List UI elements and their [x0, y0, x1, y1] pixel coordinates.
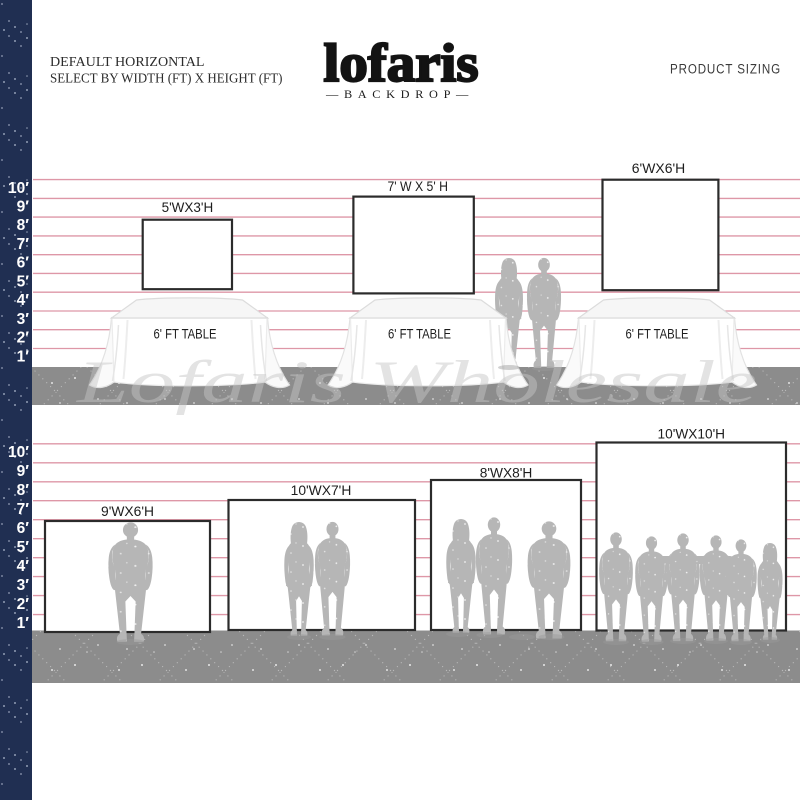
svg-text:7' W X 5' H: 7' W X 5' H	[387, 179, 448, 194]
svg-text:8'WX8'H: 8'WX8'H	[480, 466, 533, 481]
svg-text:7′: 7′	[17, 501, 30, 518]
svg-text:SELECT BY WIDTH (FT) X HEIGHT: SELECT BY WIDTH (FT) X HEIGHT (FT)	[50, 72, 283, 87]
svg-text:10'WX10'H: 10'WX10'H	[658, 427, 726, 442]
svg-text:6'WX6'H: 6'WX6'H	[632, 161, 685, 176]
svg-text:2′: 2′	[17, 596, 30, 613]
svg-text:6′: 6′	[17, 520, 30, 537]
svg-text:3′: 3′	[17, 311, 30, 328]
svg-text:8′: 8′	[17, 217, 30, 234]
svg-text:PRODUCT SIZING: PRODUCT SIZING	[670, 62, 781, 77]
svg-text:7′: 7′	[17, 236, 30, 253]
svg-text:2′: 2′	[17, 330, 30, 347]
svg-text:9'WX6'H: 9'WX6'H	[101, 504, 154, 519]
svg-text:Lofaris Wholesale: Lofaris Wholesale	[75, 349, 757, 415]
svg-text:5′: 5′	[17, 539, 30, 556]
svg-text:1′: 1′	[17, 615, 30, 632]
svg-text:DEFAULT HORIZONTAL: DEFAULT HORIZONTAL	[50, 55, 205, 70]
svg-text:5′: 5′	[17, 274, 30, 291]
svg-text:10'WX7'H: 10'WX7'H	[291, 483, 352, 498]
svg-text:9′: 9′	[17, 199, 30, 216]
svg-text:6′: 6′	[17, 255, 30, 272]
svg-text:5'WX3'H: 5'WX3'H	[162, 200, 214, 215]
svg-text:3′: 3′	[17, 577, 30, 594]
svg-text:6' FT TABLE: 6' FT TABLE	[154, 326, 217, 342]
svg-text:4′: 4′	[17, 558, 30, 575]
svg-text:1′: 1′	[17, 349, 30, 366]
svg-text:6' FT TABLE: 6' FT TABLE	[626, 326, 689, 342]
svg-text:4′: 4′	[17, 292, 30, 309]
svg-text:9′: 9′	[17, 463, 30, 480]
svg-text:10′: 10′	[8, 180, 29, 197]
svg-text:8′: 8′	[17, 482, 30, 499]
svg-text:6' FT TABLE: 6' FT TABLE	[388, 326, 451, 342]
svg-text:10′: 10′	[8, 444, 29, 461]
svg-text:lofaris: lofaris	[324, 33, 479, 93]
svg-text:—BACKDROP—: —BACKDROP—	[325, 87, 474, 101]
